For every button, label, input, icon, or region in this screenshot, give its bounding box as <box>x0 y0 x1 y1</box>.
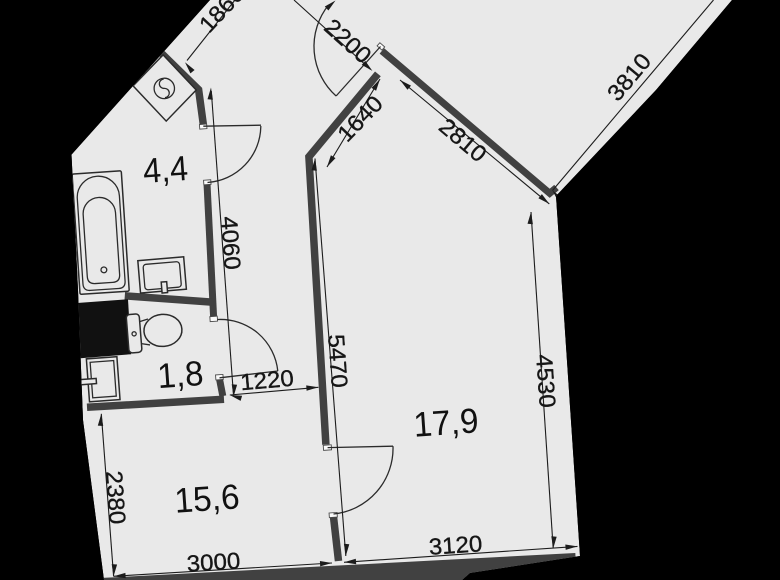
svg-text:4530: 4530 <box>531 353 561 408</box>
svg-text:1220: 1220 <box>239 365 295 396</box>
svg-text:4,4: 4,4 <box>142 149 190 191</box>
svg-text:1,8: 1,8 <box>156 354 205 396</box>
svg-text:3120: 3120 <box>428 530 483 559</box>
svg-text:17,9: 17,9 <box>412 401 480 444</box>
svg-text:2380: 2380 <box>101 470 131 525</box>
svg-text:5470: 5470 <box>323 333 353 388</box>
svg-text:3000: 3000 <box>186 547 241 576</box>
svg-text:4060: 4060 <box>216 215 246 270</box>
svg-text:15,6: 15,6 <box>173 477 241 520</box>
